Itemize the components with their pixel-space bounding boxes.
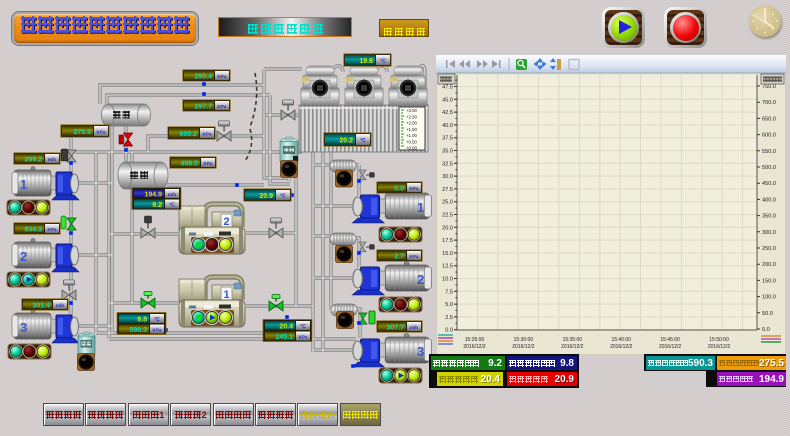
- svg-text:2.7: 2.7: [394, 254, 404, 261]
- svg-text:°C: °C: [169, 203, 175, 209]
- svg-text:295.4: 295.4: [194, 74, 212, 81]
- svg-text:9.8: 9.8: [137, 317, 147, 324]
- svg-text:m/h: m/h: [56, 303, 64, 308]
- svg-text:m/h: m/h: [48, 157, 56, 162]
- svg-text:KPa: KPa: [204, 161, 213, 166]
- svg-text:°C: °C: [280, 194, 286, 200]
- svg-text:2: 2: [223, 216, 229, 228]
- svg-text:20.9: 20.9: [259, 193, 273, 200]
- svg-text:1: 1: [417, 200, 424, 215]
- svg-text:301.4: 301.4: [32, 303, 50, 310]
- svg-text:0.0: 0.0: [394, 186, 404, 193]
- svg-text:9.2: 9.2: [152, 202, 162, 209]
- svg-text:°C: °C: [300, 324, 306, 330]
- svg-text:m/h: m/h: [168, 192, 176, 197]
- svg-text:KPa: KPa: [299, 335, 308, 340]
- svg-text:3: 3: [417, 344, 424, 359]
- svg-text:°C: °C: [380, 59, 386, 65]
- svg-text:2: 2: [417, 272, 424, 287]
- svg-text:1: 1: [223, 289, 229, 301]
- svg-text:2: 2: [20, 249, 27, 264]
- svg-text:194.9: 194.9: [144, 192, 162, 199]
- svg-text:1: 1: [20, 177, 27, 192]
- svg-text:245.1: 245.1: [275, 334, 293, 341]
- svg-text:20.2: 20.2: [339, 138, 353, 145]
- svg-text:+3.00: +3.00: [406, 108, 417, 113]
- svg-text:498.5: 498.5: [180, 161, 198, 168]
- svg-text:KPa: KPa: [218, 104, 227, 109]
- svg-text:297.7: 297.7: [194, 104, 212, 111]
- svg-text:20.4: 20.4: [279, 324, 293, 331]
- svg-text:+0.50: +0.50: [406, 140, 417, 145]
- svg-text:KPa: KPa: [97, 130, 106, 135]
- svg-text:600.2: 600.2: [179, 131, 197, 138]
- svg-text:590.3: 590.3: [129, 327, 147, 334]
- svg-text:+2.00: +2.00: [406, 121, 417, 126]
- svg-text:19.6: 19.6: [359, 58, 373, 65]
- svg-text:m/h: m/h: [410, 325, 418, 330]
- svg-text:KPa: KPa: [410, 186, 419, 191]
- svg-text:KPa: KPa: [153, 328, 162, 333]
- svg-text:KPa: KPa: [48, 227, 57, 232]
- svg-text:3: 3: [20, 320, 27, 335]
- svg-text:275.5: 275.5: [73, 129, 91, 136]
- svg-text:+0.00: +0.00: [406, 146, 417, 151]
- svg-text:+2.50: +2.50: [406, 114, 417, 119]
- svg-text:299.2: 299.2: [24, 157, 42, 164]
- svg-text:634.3: 634.3: [24, 227, 42, 234]
- svg-text:°C: °C: [154, 317, 160, 323]
- svg-text:KPa: KPa: [203, 132, 212, 137]
- svg-text:KPa: KPa: [218, 74, 227, 79]
- svg-text:+1.50: +1.50: [406, 127, 417, 132]
- svg-text:KPa: KPa: [410, 254, 419, 259]
- svg-text:+1.00: +1.00: [406, 133, 417, 138]
- svg-text:°C: °C: [360, 138, 366, 144]
- svg-text:307.7: 307.7: [386, 325, 404, 332]
